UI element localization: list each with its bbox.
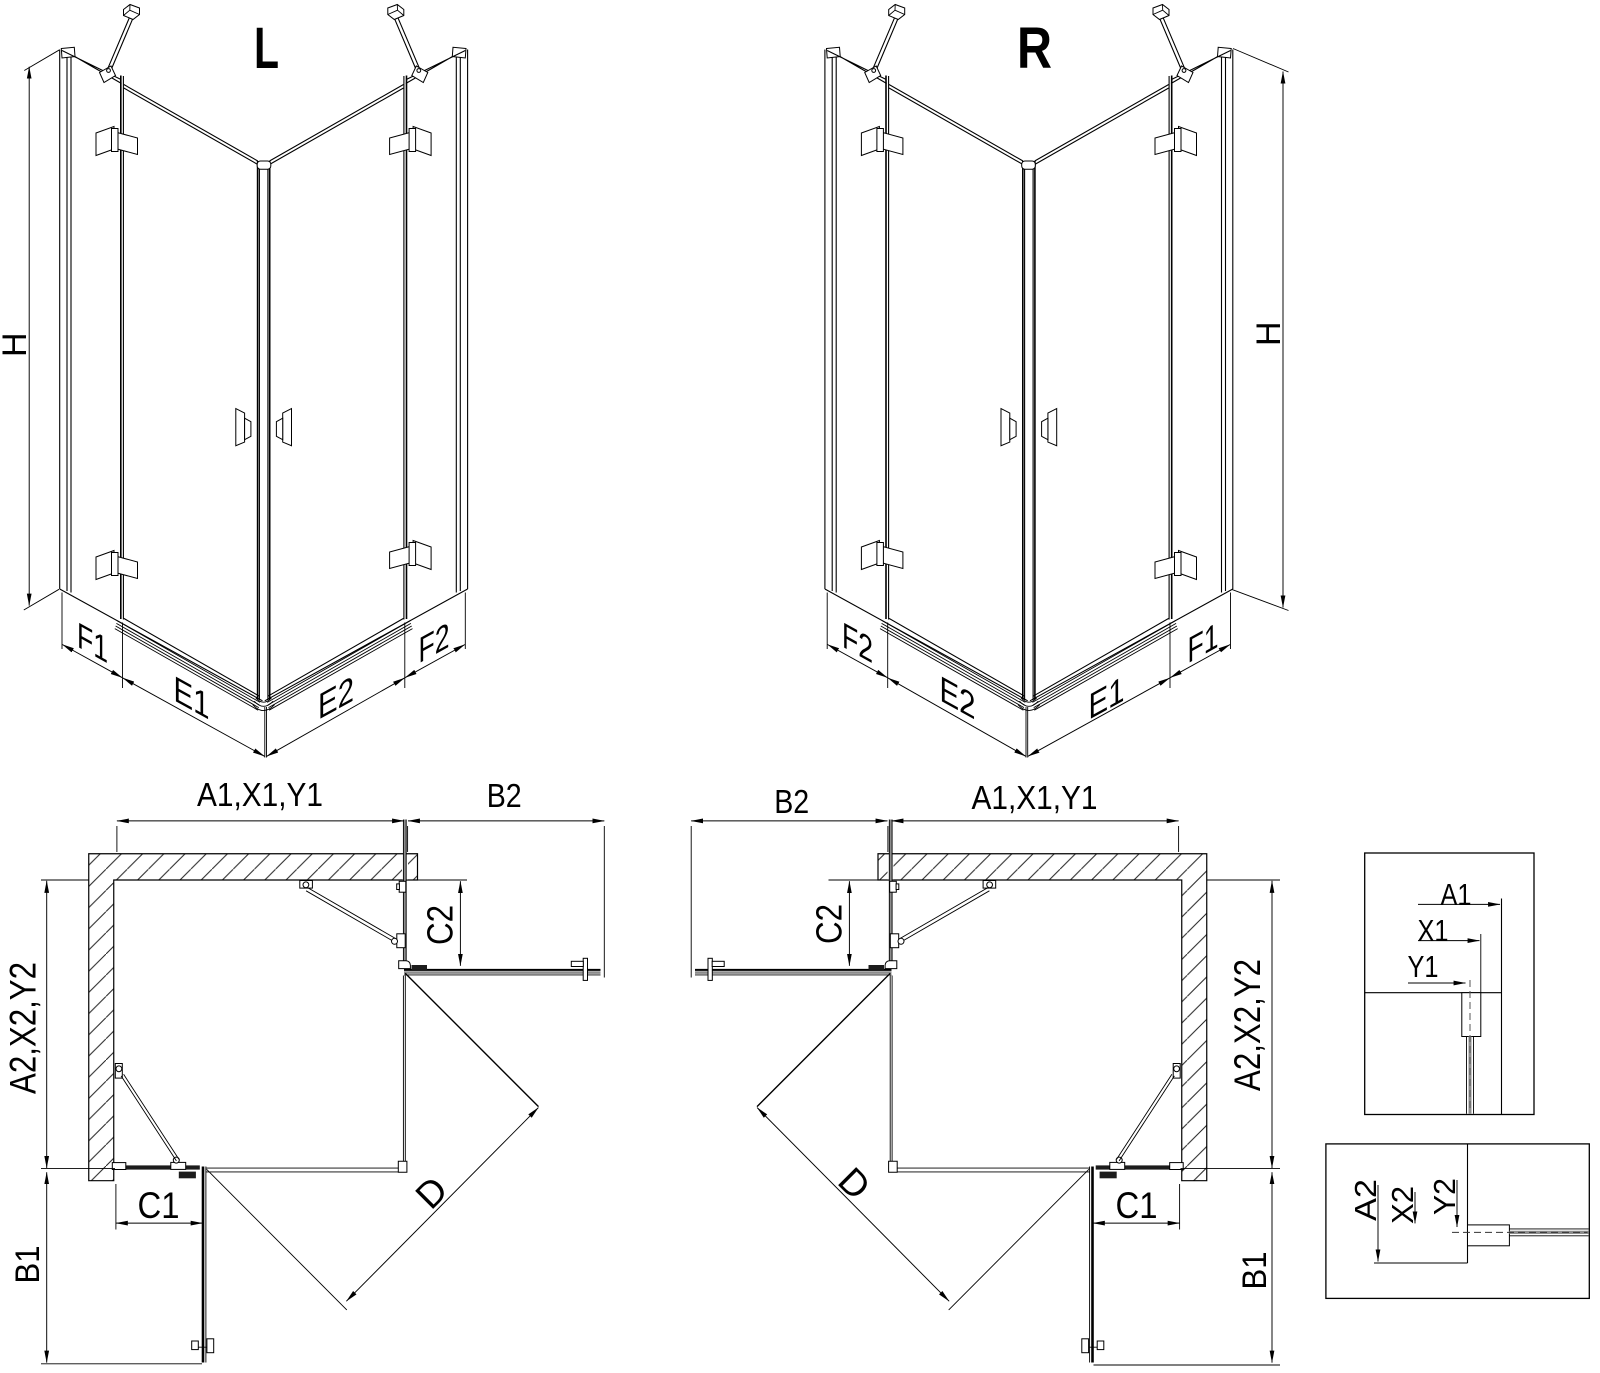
svg-text:B2: B2 [487, 777, 522, 814]
svg-text:L: L [254, 16, 279, 81]
svg-text:Y1: Y1 [1408, 949, 1439, 984]
svg-text:A1,X1,Y1: A1,X1,Y1 [972, 779, 1098, 816]
svg-text:A2: A2 [1348, 1179, 1383, 1221]
svg-text:C2: C2 [420, 905, 461, 945]
svg-text:C1: C1 [138, 1185, 180, 1226]
svg-text:A1: A1 [1441, 877, 1472, 912]
svg-text:X2: X2 [1385, 1186, 1420, 1224]
svg-text:C1: C1 [1116, 1185, 1158, 1226]
svg-text:H: H [1250, 321, 1288, 346]
svg-text:B1: B1 [1236, 1252, 1274, 1290]
svg-text:B2: B2 [774, 783, 809, 820]
svg-text:X1: X1 [1418, 913, 1449, 948]
svg-text:H: H [0, 332, 34, 357]
svg-text:Y2: Y2 [1427, 1178, 1462, 1215]
svg-text:R: R [1017, 16, 1052, 81]
svg-text:A2,X2,Y2: A2,X2,Y2 [1227, 959, 1268, 1091]
svg-text:A2,X2,Y2: A2,X2,Y2 [3, 962, 44, 1094]
svg-text:C2: C2 [809, 904, 850, 944]
svg-text:B1: B1 [9, 1246, 47, 1284]
svg-text:A1,X1,Y1: A1,X1,Y1 [197, 776, 323, 813]
